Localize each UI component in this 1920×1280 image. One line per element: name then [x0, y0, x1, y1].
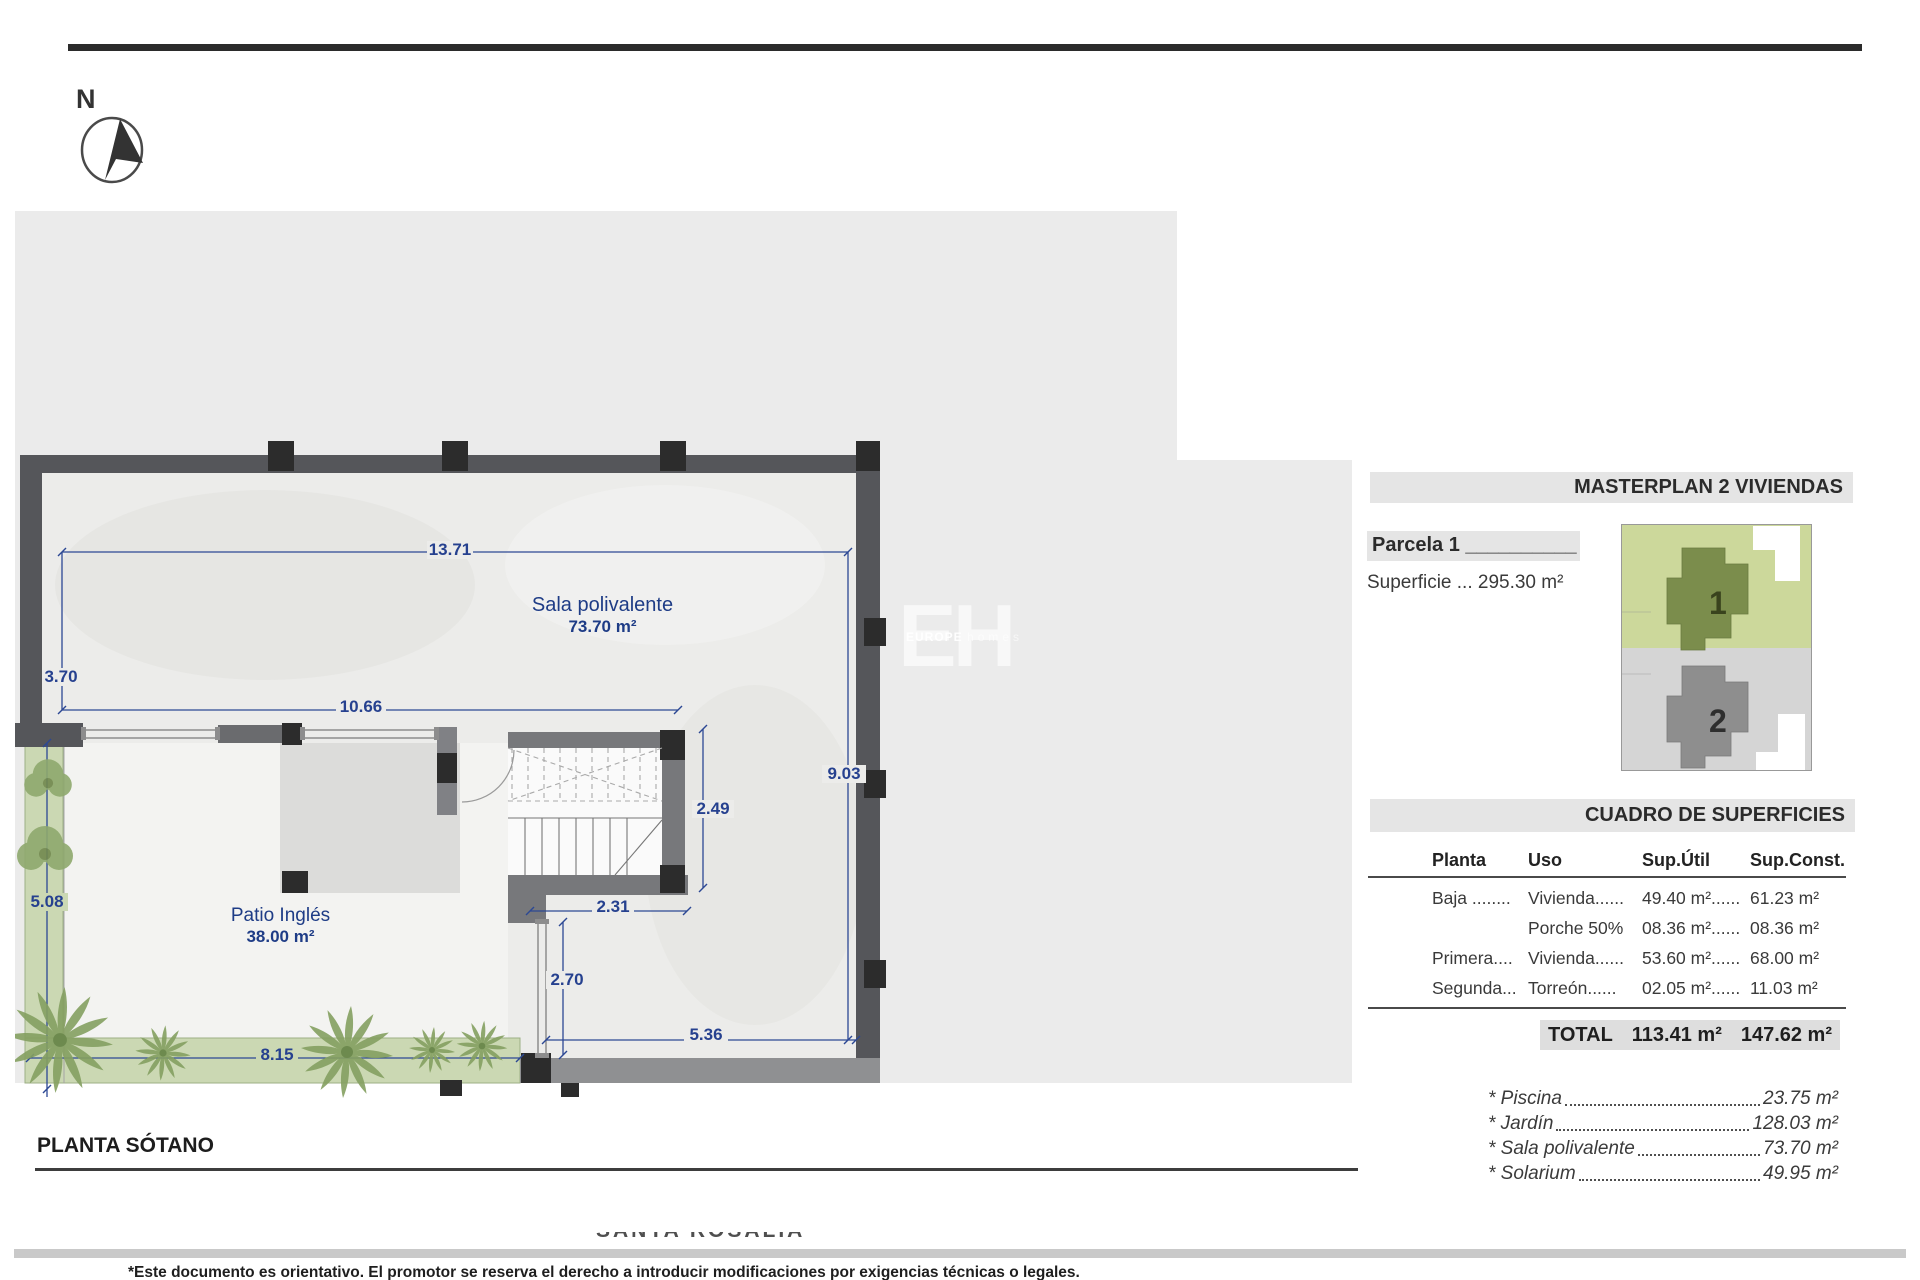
extra-item-solarium: * Solarium49.95 m²	[1488, 1163, 1838, 1185]
dim-door: 2.70	[546, 971, 588, 989]
floor-plan-drawing	[15, 435, 890, 1100]
plot1-number: 1	[1709, 585, 1727, 621]
dotted-leader	[1638, 1154, 1760, 1156]
table-header-row: Planta Uso Sup.Útil Sup.Const.	[1432, 850, 1848, 871]
dim-bottom-left: 8.15	[256, 1046, 298, 1064]
dim-bottom-right: 5.36	[684, 1026, 728, 1044]
plan-sheet-title: PLANTA SÓTANO	[37, 1134, 214, 1158]
total-const-value: 147.62 m²	[1741, 1024, 1832, 1047]
patio-ingles-label: Patio Inglés 38.00 m²	[203, 905, 358, 947]
parcel-label: Parcela 1 __________	[1367, 531, 1580, 561]
dotted-leader	[1556, 1129, 1749, 1131]
dim-top: 13.71	[427, 541, 473, 559]
total-util-value: 113.41 m²	[1632, 1024, 1722, 1047]
top-rule	[68, 44, 1862, 51]
sala-polivalente-label: Sala polivalente 73.70 m²	[525, 594, 680, 637]
extra-item-sala: * Sala polivalente73.70 m²	[1488, 1138, 1838, 1160]
dim-left-lower: 5.08	[26, 893, 68, 911]
extra-item-piscina: * Piscina23.75 m²	[1488, 1088, 1838, 1110]
col-header-sup-util: Sup.Útil	[1642, 850, 1750, 871]
parcel-superficie: Superficie ... 295.30 m²	[1367, 572, 1607, 594]
masterplan-title: MASTERPLAN 2 VIVIENDAS	[1370, 472, 1853, 503]
dim-inner: 10.66	[336, 698, 386, 716]
plot2-number: 2	[1709, 703, 1727, 739]
bottom-rule	[14, 1249, 1906, 1258]
site-backdrop-upper	[15, 211, 1177, 460]
extra-item-jardin: * Jardín128.03 m²	[1488, 1113, 1838, 1135]
table-total-row: TOTAL 113.41 m² 147.62 m²	[1540, 1020, 1840, 1050]
dotted-leader	[1579, 1179, 1760, 1181]
table-row: Primera.... Vivienda...... 53.60 m².....…	[1432, 948, 1848, 969]
col-header-uso: Uso	[1528, 850, 1642, 871]
dim-left: 3.70	[42, 668, 80, 686]
table-row: Segunda... Torreón...... 02.05 m²...... …	[1432, 978, 1848, 999]
dotted-leader	[1565, 1104, 1760, 1106]
col-header-planta: Planta	[1432, 850, 1528, 871]
table-row: Baja ........ Vivienda...... 49.40 m²...…	[1432, 888, 1848, 909]
table-row: Porche 50% 08.36 m²...... 08.36 m²	[1432, 918, 1848, 939]
brand-watermark-text: EUROPE homes	[906, 630, 1023, 644]
dim-stair-height: 2.49	[692, 800, 734, 818]
compass-north-label: N	[76, 84, 96, 115]
development-name-clipped: SANTA ROSALIA	[596, 1232, 826, 1246]
plan-title-underline	[35, 1168, 1358, 1171]
compass-north-icon	[79, 114, 147, 186]
total-label: TOTAL	[1548, 1024, 1613, 1047]
floor-plan-sheet: N EH EUROPE homes	[0, 0, 1920, 1280]
dim-stair-width: 2.31	[592, 898, 634, 916]
footer-disclaimer: *Este documento es orientativo. El promo…	[128, 1264, 1528, 1280]
surfaces-table-title: CUADRO DE SUPERFICIES	[1370, 799, 1855, 832]
stairwell-floor	[508, 746, 662, 877]
dim-right: 9.03	[822, 765, 866, 783]
col-header-sup-const: Sup.Const.	[1750, 850, 1848, 871]
table-rule-bottom	[1368, 1007, 1846, 1009]
patio-platform	[280, 743, 460, 893]
brand-watermark: EH EUROPE homes	[898, 596, 1028, 680]
masterplan-map: 1 2	[1621, 524, 1812, 771]
table-rule-top	[1368, 876, 1846, 878]
